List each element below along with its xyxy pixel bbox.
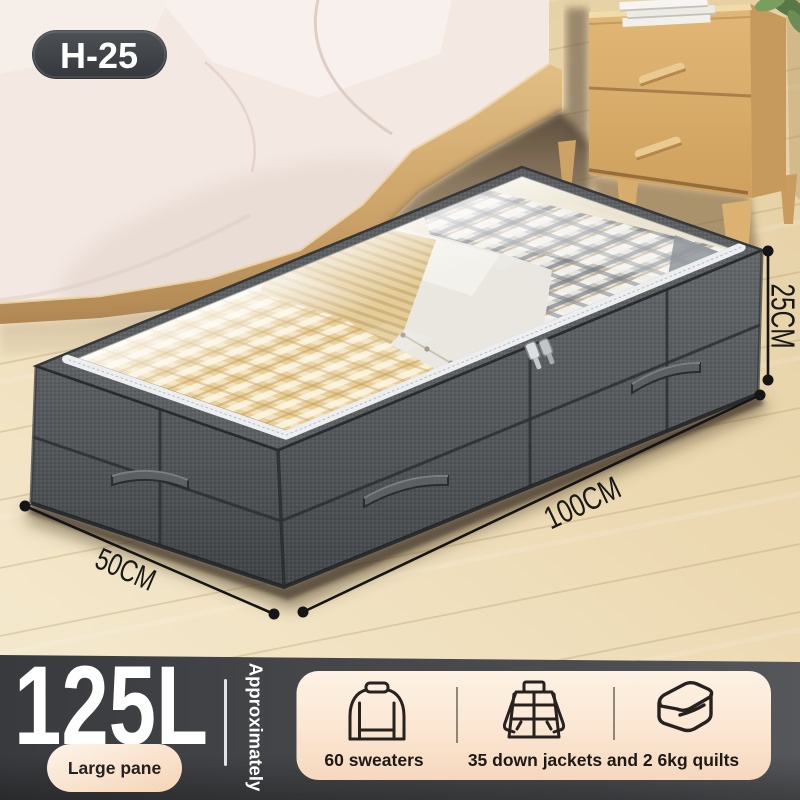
svg-text:Approximately: Approximately (246, 663, 267, 792)
svg-text:Large pane: Large pane (68, 758, 162, 778)
svg-text:25CM: 25CM (764, 283, 800, 348)
svg-text:60 sweaters: 60 sweaters (324, 750, 424, 770)
svg-text:35 down jackets and 2 6kg quil: 35 down jackets and 2 6kg quilts (468, 750, 740, 770)
svg-text:H-25: H-25 (60, 35, 138, 76)
